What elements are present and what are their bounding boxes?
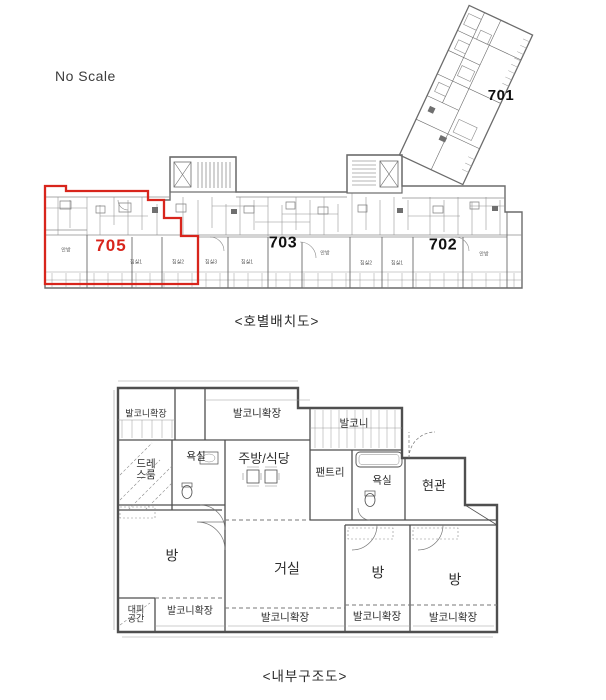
floorplan-canvas bbox=[0, 0, 606, 700]
room-label: 드레스룸 bbox=[133, 459, 159, 481]
floorplan-page: { "top_diagram": { "scale_note": "No Sca… bbox=[0, 0, 606, 700]
unit-floorplan bbox=[114, 381, 497, 637]
room-label: 방 bbox=[449, 573, 462, 588]
room-label: 침실1 bbox=[130, 260, 142, 265]
room-label: 거실 bbox=[274, 562, 300, 577]
top-diagram-caption: <호별배치도> bbox=[235, 315, 320, 329]
scale-note: No Scale bbox=[55, 68, 116, 84]
room-label: 발코니확장 bbox=[233, 408, 281, 419]
stair-core-right bbox=[347, 155, 402, 193]
unit-701-label: 701 bbox=[488, 88, 515, 104]
room-label: 발코니 bbox=[340, 418, 369, 429]
room-label: 대피공간 bbox=[126, 606, 146, 625]
room-label: 안방 bbox=[320, 251, 329, 256]
room-label: 주방/식당 bbox=[238, 452, 289, 466]
unit-703-label: 703 bbox=[269, 236, 297, 253]
room-label: 방 bbox=[372, 566, 385, 581]
room-label: 방 bbox=[166, 549, 179, 564]
unit-705-label: 705 bbox=[95, 237, 126, 255]
room-label: 발코니확장 bbox=[353, 611, 401, 622]
room-label: 욕실 bbox=[186, 451, 205, 462]
room-label: 침실1 bbox=[241, 260, 253, 265]
bottom-diagram-caption: <내부구조도> bbox=[263, 670, 348, 684]
unit-702-label: 702 bbox=[429, 238, 457, 255]
room-label: 침실2 bbox=[360, 261, 372, 266]
room-label: 발코니확장 bbox=[429, 612, 477, 623]
room-label: 팬트리 bbox=[316, 467, 345, 478]
stair-core-left bbox=[170, 157, 236, 192]
room-label: 침실1 bbox=[391, 261, 403, 266]
room-label: 안방 bbox=[61, 248, 70, 253]
room-label: 침실2 bbox=[172, 260, 184, 265]
room-label: 안방 bbox=[479, 252, 488, 257]
room-label: 침실3 bbox=[205, 260, 217, 265]
room-label: 발코니확장 bbox=[261, 612, 309, 623]
building-strip bbox=[45, 155, 522, 288]
room-label: 현관 bbox=[422, 479, 446, 493]
room-label: 욕실 bbox=[372, 475, 391, 486]
room-label: 발코니확장 bbox=[167, 607, 213, 618]
room-label: 발코니확장 bbox=[125, 409, 166, 418]
